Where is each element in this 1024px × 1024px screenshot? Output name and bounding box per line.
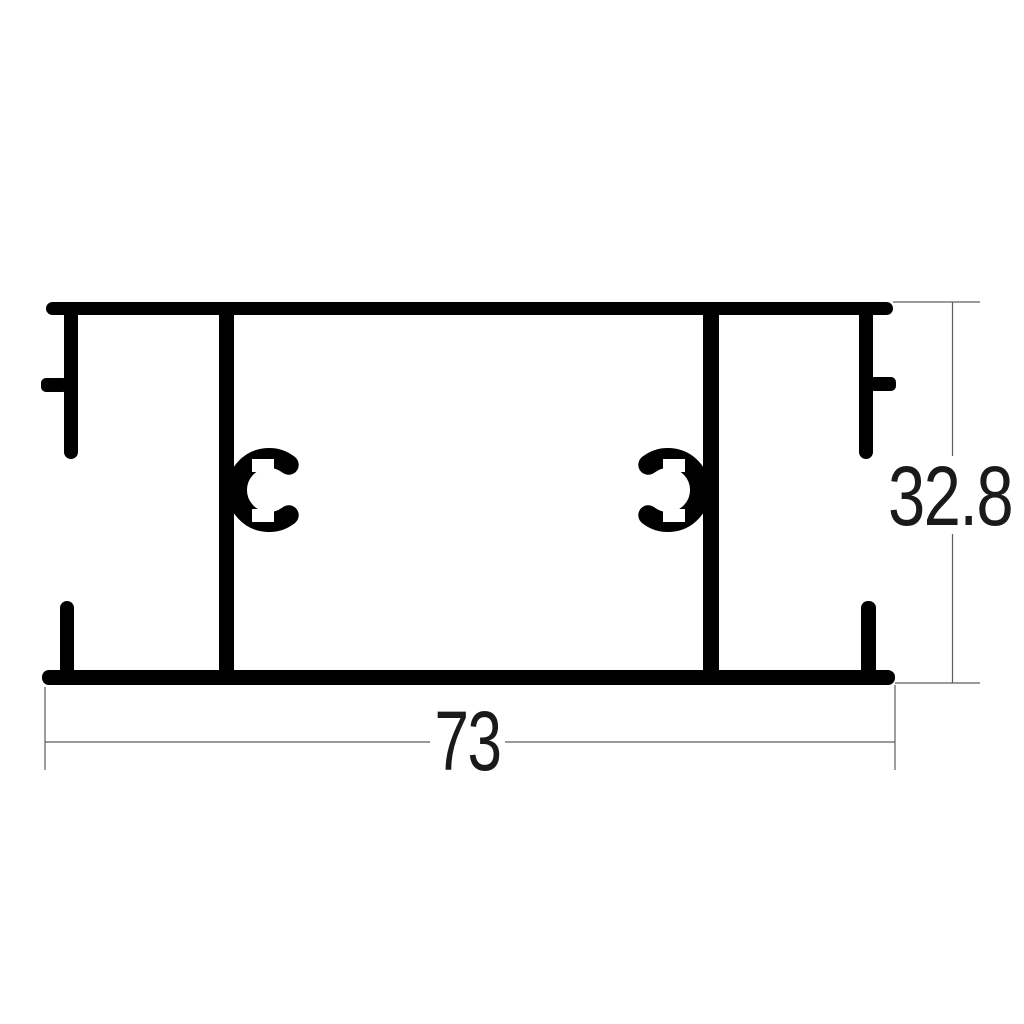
- height-dimension-label: 32.8: [888, 449, 1012, 543]
- dimension-lines: [45, 302, 980, 770]
- profile-body: [41, 302, 896, 685]
- dimension-labels: 32.8 73: [435, 449, 1013, 788]
- screw-boss-right-notch-bottom: [663, 509, 685, 522]
- profile-bottom-flange: [42, 670, 895, 685]
- width-dimension-label: 73: [435, 694, 501, 788]
- profile-right-leg-tab: [869, 377, 896, 391]
- profile-top-flange: [46, 302, 893, 315]
- screw-boss-right-notch-top: [663, 459, 685, 472]
- screw-boss-left-notch-bottom: [252, 509, 274, 522]
- profile-right-bottom-stub: [861, 601, 876, 677]
- profile-drawing-svg: 32.8 73: [0, 0, 1024, 1024]
- profile-left-leg-tab: [41, 378, 68, 392]
- profile-left-bottom-stub: [60, 601, 74, 677]
- screw-boss-left-notch-top: [252, 459, 274, 472]
- drawing-canvas: 32.8 73: [0, 0, 1024, 1024]
